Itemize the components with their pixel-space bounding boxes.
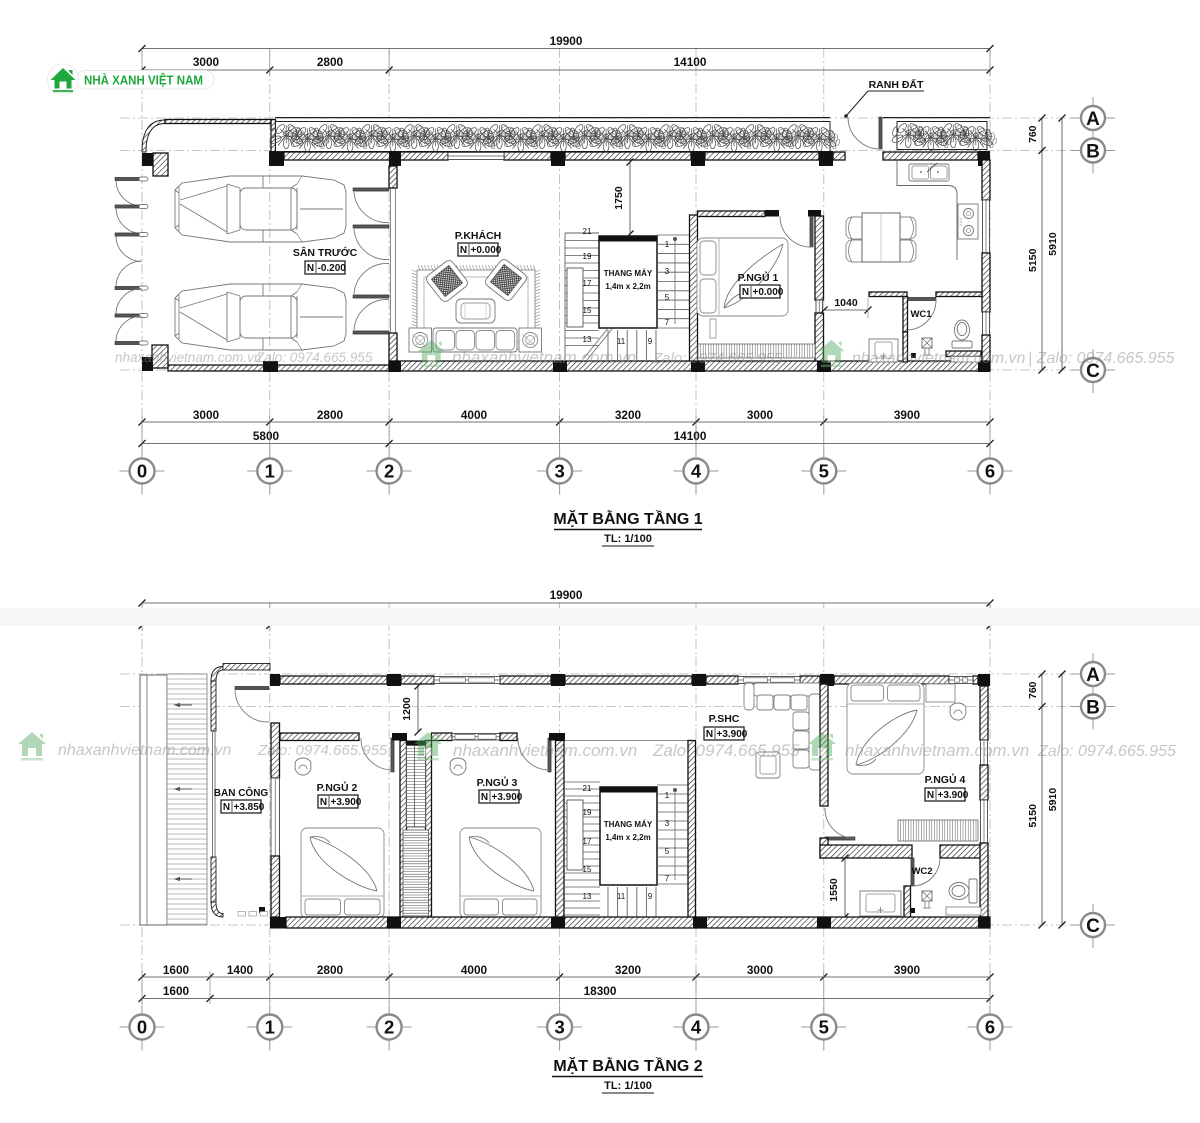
svg-text:RANH ĐẤT: RANH ĐẤT [869, 78, 924, 91]
svg-text:P.NGỦ 1: P.NGỦ 1 [738, 271, 779, 284]
svg-text:+3.900: +3.900 [331, 797, 362, 808]
svg-text:2800: 2800 [317, 55, 344, 69]
svg-text:N: N [460, 245, 467, 256]
svg-text:N: N [706, 729, 713, 740]
svg-text:7: 7 [665, 874, 670, 883]
svg-text:7: 7 [665, 318, 670, 327]
svg-text:nhaxanhvietnam.com.vn: nhaxanhvietnam.com.vn [852, 350, 1026, 367]
svg-text:Zalo: 0974.665.955: Zalo: 0974.665.955 [652, 741, 800, 760]
svg-text:1200: 1200 [401, 697, 413, 721]
svg-text:1: 1 [665, 791, 670, 800]
svg-text:1600: 1600 [163, 984, 190, 998]
svg-text:3: 3 [554, 461, 564, 482]
svg-text:18300: 18300 [584, 984, 617, 998]
svg-text:5: 5 [665, 293, 670, 302]
svg-text:1400: 1400 [227, 963, 254, 977]
svg-text:B: B [1086, 141, 1100, 162]
svg-text:19900: 19900 [550, 588, 583, 602]
svg-text:P.NGỦ 3: P.NGỦ 3 [477, 776, 518, 789]
svg-text:N: N [320, 797, 327, 808]
svg-text:+3.900: +3.900 [717, 729, 748, 740]
svg-text:17: 17 [583, 279, 592, 288]
svg-text:N: N [742, 287, 749, 298]
svg-text:3200: 3200 [615, 963, 642, 977]
svg-text:| Zalo: 0974.665.955: | Zalo: 0974.665.955 [1028, 350, 1175, 367]
svg-text:P.NGỦ 2: P.NGỦ 2 [317, 781, 358, 794]
svg-text:N: N [481, 792, 488, 803]
svg-text:C: C [1086, 916, 1100, 937]
svg-text:3000: 3000 [193, 408, 220, 422]
svg-text:9: 9 [648, 337, 653, 346]
svg-text:BAN CÔNG: BAN CÔNG [214, 786, 269, 799]
svg-text:N: N [223, 802, 230, 813]
svg-text:6: 6 [985, 1017, 995, 1038]
svg-text:9: 9 [648, 892, 653, 901]
svg-text:TL: 1/100: TL: 1/100 [604, 1080, 652, 1092]
svg-text:A: A [1086, 665, 1100, 686]
svg-text:14100: 14100 [674, 55, 707, 69]
svg-text:3900: 3900 [894, 963, 921, 977]
svg-text:WC2: WC2 [911, 866, 932, 877]
svg-text:Zalo: 0974.665.955: Zalo: 0974.665.955 [652, 350, 783, 367]
svg-text:15: 15 [583, 306, 592, 315]
svg-text:5910: 5910 [1047, 232, 1059, 256]
svg-text:N: N [927, 790, 934, 801]
svg-text:P.SHC: P.SHC [709, 713, 740, 725]
svg-text:1550: 1550 [828, 878, 840, 902]
svg-text:5800: 5800 [253, 429, 280, 443]
svg-text:NHÀ XANH VIỆT NAM: NHÀ XANH VIỆT NAM [84, 73, 203, 88]
svg-text:2: 2 [384, 1017, 394, 1038]
svg-text:5150: 5150 [1027, 804, 1039, 828]
svg-text:3000: 3000 [747, 963, 774, 977]
svg-text:5: 5 [819, 1017, 829, 1038]
svg-text:13: 13 [583, 335, 592, 344]
svg-text:2800: 2800 [317, 408, 344, 422]
svg-text:3000: 3000 [747, 408, 774, 422]
svg-text:3: 3 [665, 267, 670, 276]
svg-text:1: 1 [265, 1017, 275, 1038]
svg-text:1,4m x 2,2m: 1,4m x 2,2m [605, 282, 650, 291]
svg-text:N: N [307, 263, 314, 274]
svg-text:19900: 19900 [550, 34, 583, 48]
svg-text:nhaxanhvietnam.com.vn: nhaxanhvietnam.com.vn [58, 742, 232, 759]
svg-text:19: 19 [583, 808, 592, 817]
svg-text:17: 17 [583, 837, 592, 846]
svg-text:+3.900: +3.900 [492, 792, 523, 803]
svg-text:760: 760 [1027, 125, 1039, 143]
svg-text:MẶT BẰNG TẦNG 2: MẶT BẰNG TẦNG 2 [553, 1056, 702, 1075]
svg-text:MẶT BẰNG TẦNG 1: MẶT BẰNG TẦNG 1 [553, 509, 702, 528]
svg-text:13: 13 [583, 892, 592, 901]
svg-text:4000: 4000 [461, 408, 488, 422]
svg-text:5910: 5910 [1047, 788, 1059, 812]
svg-text:nhaxanhvietnam.com.vn: nhaxanhvietnam.com.vn [845, 741, 1029, 760]
svg-text:14100: 14100 [674, 429, 707, 443]
svg-text:6: 6 [985, 461, 995, 482]
svg-text:4: 4 [691, 461, 702, 482]
svg-text:1040: 1040 [834, 297, 858, 309]
svg-text:1: 1 [265, 461, 275, 482]
svg-text:nhaxanhvietnam.com.vn: nhaxanhvietnam.com.vn [115, 350, 261, 365]
svg-text:+0.000: +0.000 [753, 287, 784, 298]
svg-text:P.NGỦ 4: P.NGỦ 4 [925, 773, 966, 786]
svg-text:21: 21 [583, 784, 592, 793]
svg-text:11: 11 [617, 892, 626, 901]
svg-text:4000: 4000 [461, 963, 488, 977]
svg-text:Zalo: 0974.665.955: Zalo: 0974.665.955 [1037, 743, 1176, 760]
svg-text:2800: 2800 [317, 963, 344, 977]
svg-text:3000: 3000 [193, 55, 220, 69]
svg-text:B: B [1086, 697, 1100, 718]
svg-text:3: 3 [665, 819, 670, 828]
svg-text:760: 760 [1027, 681, 1039, 699]
svg-text:Zalo: 0974.665.955: Zalo: 0974.665.955 [255, 350, 373, 365]
svg-text:11: 11 [617, 337, 626, 346]
svg-text:3: 3 [554, 1017, 564, 1038]
svg-text:4: 4 [691, 1017, 702, 1038]
svg-text:15: 15 [583, 865, 592, 874]
svg-text:+3.900: +3.900 [938, 790, 969, 801]
svg-text:SÂN TRƯỚC: SÂN TRƯỚC [293, 246, 358, 259]
svg-text:2: 2 [384, 461, 394, 482]
svg-text:THANG MÁY: THANG MÁY [604, 820, 653, 829]
svg-text:+0.000: +0.000 [471, 245, 502, 256]
svg-text:nhaxanhvietnam.com.vn: nhaxanhvietnam.com.vn [453, 741, 637, 760]
svg-text:1600: 1600 [163, 963, 190, 977]
svg-text:5150: 5150 [1027, 248, 1039, 272]
svg-text:THANG MÁY: THANG MÁY [604, 269, 653, 278]
svg-text:3900: 3900 [894, 408, 921, 422]
svg-text:1750: 1750 [613, 186, 625, 210]
svg-text:5: 5 [665, 847, 670, 856]
svg-text:0: 0 [137, 1017, 147, 1038]
svg-text:WC1: WC1 [910, 309, 932, 320]
svg-text:1: 1 [665, 240, 670, 249]
svg-text:5: 5 [819, 461, 829, 482]
svg-text:+3.850: +3.850 [234, 802, 265, 813]
svg-text:21: 21 [583, 227, 592, 236]
svg-text:nhaxanhvietnam.com.vn: nhaxanhvietnam.com.vn [452, 348, 636, 367]
svg-text:0: 0 [137, 461, 147, 482]
svg-text:1,4m x 2,2m: 1,4m x 2,2m [605, 833, 650, 842]
svg-text:Zalo: 0974.665.955: Zalo: 0974.665.955 [257, 742, 388, 759]
svg-text:A: A [1086, 109, 1100, 130]
svg-text:TL: 1/100: TL: 1/100 [604, 533, 652, 545]
svg-text:19: 19 [583, 252, 592, 261]
svg-text:P.KHÁCH: P.KHÁCH [455, 229, 501, 242]
svg-text:3200: 3200 [615, 408, 642, 422]
svg-text:-0.200: -0.200 [318, 263, 347, 274]
